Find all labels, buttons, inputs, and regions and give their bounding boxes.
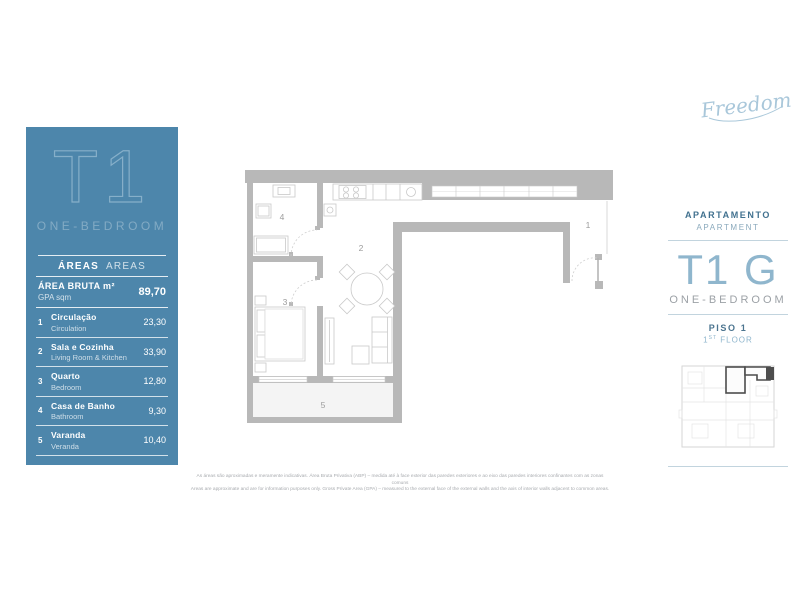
divider [668,240,788,241]
room-name-pt: Quarto [51,371,143,381]
freedom-logo: Freedom [695,84,795,130]
divider [668,466,788,467]
kitchen-counter [333,184,422,200]
unit-type: ONE-BEDROOM [662,294,794,306]
row-number: 2 [38,347,51,356]
coffee-table [352,346,369,364]
floor-word: FLOOR [720,336,753,345]
disclaimer-pt: As áreas são aproximadas e meramente ind… [190,474,610,487]
room-name-en: Bathroom [51,412,148,421]
room-name-pt: Casa de Banho [51,401,148,411]
room-label-2: 2 [359,243,364,253]
room-area-value: 33,90 [143,347,166,357]
bathroom-fixtures [254,185,295,254]
key-plan [678,358,778,453]
divider [668,314,788,315]
apartment-label-pt: APARTAMENTO [662,210,794,220]
room-name-en: Veranda [51,442,143,451]
room-name-pt: Circulação [51,312,143,322]
row-number: 4 [38,406,51,415]
unit-code: T1 G [662,248,794,292]
chair [339,298,355,314]
disclaimer: As áreas são aproximadas e meramente ind… [190,474,610,494]
room-area-value: 10,40 [143,435,166,445]
row-number: 5 [38,436,51,445]
floor-label-pt: PISO 1 [662,323,794,333]
gross-area-label-pt: ÁREA BRUTA m² [38,281,138,291]
typology-subtitle: ONE-BEDROOM [36,219,168,233]
room-name-en: Living Room & Kitchen [51,353,143,362]
room-label-4: 4 [280,212,285,222]
areas-header-en: AREAS [106,261,146,272]
row-number: 1 [38,318,51,327]
entry-door-arc [572,258,598,281]
room-label-5: 5 [321,400,326,410]
disclaimer-en: Areas are approximate and are for inform… [190,487,610,494]
room-name-en: Bedroom [51,383,143,392]
chair [379,298,395,314]
room-name-pt: Sala e Cozinha [51,342,143,352]
area-row-bathroom: 4 Casa de Banho Bathroom 9,30 [36,397,168,427]
areas-header-pt: ÁREAS [58,261,99,272]
door-swings [291,230,598,306]
area-row-circulation: 1 Circulação Circulation 23,30 [36,308,168,338]
room-area-value: 23,30 [143,317,166,327]
brochure-page: Freedom T1 ONE-BEDROOM ÁREAS AREAS ÁREA … [0,0,800,600]
area-row-living-kitchen: 2 Sala e Cozinha Living Room & Kitchen 3… [36,338,168,368]
living-furniture [339,264,395,364]
dining-table [351,273,383,305]
gross-area-value: 89,70 [138,286,166,298]
room-name-pt: Varanda [51,430,143,440]
typology-title: T1 [36,137,168,217]
gross-area-row: ÁREA BRUTA m² GPA sqm 89,70 [36,276,168,308]
floor-ordinal: ST [709,335,717,341]
room-label-1: 1 [586,220,591,230]
floor-plan: 1 2 3 4 5 [245,168,615,423]
stove [339,186,366,199]
area-row-veranda: 5 Varanda Veranda 10,40 [36,426,168,456]
unit-info-panel: APARTAMENTO APARTMENT T1 G ONE-BEDROOM P… [662,210,794,467]
areas-sidebar: T1 ONE-BEDROOM ÁREAS AREAS ÁREA BRUTA m²… [26,127,178,465]
row-number: 3 [38,377,51,386]
nightstand [255,363,266,372]
kitchen-sink [407,188,416,197]
room-area-value: 12,80 [143,376,166,386]
areas-table-header: ÁREAS AREAS [36,256,168,276]
apartment-label-en: APARTMENT [662,223,794,232]
chair [379,264,395,280]
chair [339,264,355,280]
bathroom-door-arc [291,230,317,256]
floor-label-en: 1ST FLOOR [662,335,794,345]
nightstand [255,296,266,305]
room-area-value: 9,30 [148,406,166,416]
hall-fixture [324,204,336,216]
gross-area-label-en: GPA sqm [38,293,138,302]
room-label-3: 3 [283,297,288,307]
sofa [372,317,392,363]
corridor-windows [432,186,577,197]
area-row-bedroom: 3 Quarto Bedroom 12,80 [36,367,168,397]
freedom-logo-text: Freedom [699,88,793,123]
bedroom-door-arc [291,280,317,306]
room-name-en: Circulation [51,324,143,333]
